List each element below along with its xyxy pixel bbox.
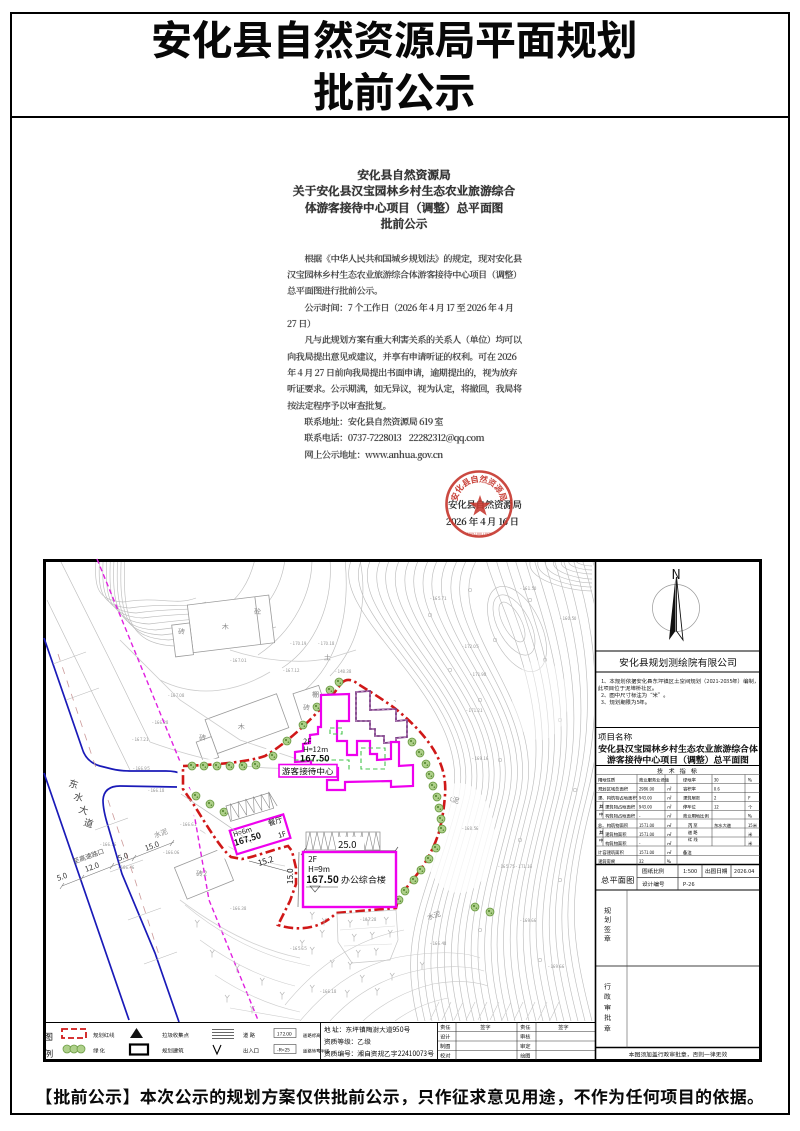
svg-text:规划建筑: 规划建筑 [162,1047,184,1055]
svg-text:砖: 砖 [178,627,185,637]
svg-text:N: N [671,564,680,583]
svg-text:设计编号: 设计编号 [642,880,664,888]
svg-text:地 址：东坪镇陶澍大道950号: 地 址：东坪镇陶澍大道950号 [324,1024,410,1034]
svg-text:建筑物占地面积: 建筑物占地面积 [604,805,636,811]
svg-text:图纸比例: 图纸比例 [642,867,664,875]
svg-text:木: 木 [222,622,229,632]
svg-text:个: 个 [748,804,753,811]
svg-text:容积率: 容积率 [683,787,697,793]
svg-text:章: 章 [604,1024,611,1034]
svg-text:- 168.56: - 168.56 [462,826,479,832]
svg-text:签字: 签字 [558,1024,568,1031]
svg-text:例: 例 [44,1047,53,1060]
svg-text:15.0: 15.0 [285,868,296,884]
svg-text:㎡: ㎡ [667,787,672,793]
svg-text:25.0: 25.0 [338,837,356,851]
svg-text:停车位: 停车位 [682,805,697,811]
svg-text:- 161.50: - 161.50 [520,586,537,592]
svg-text:- 148.38: - 148.38 [335,669,352,675]
svg-text:用地性质: 用地性质 [597,778,616,784]
svg-text:规划区域总面积: 规划区域总面积 [598,787,629,793]
svg-text:㎡: ㎡ [667,850,672,856]
svg-text:943.00: 943.00 [639,796,653,802]
svg-text:出入口: 出入口 [243,1047,259,1055]
svg-text:行: 行 [604,982,611,992]
svg-text:计容建筑面积: 计容建筑面积 [597,850,624,856]
svg-text:制图: 制图 [440,1043,450,1050]
svg-text:砼: 砼 [254,607,261,617]
svg-text:- 167.01: - 167.01 [230,658,247,664]
svg-text:15米: 15米 [748,823,758,829]
svg-text:12: 12 [714,805,719,811]
svg-text:- 170.18: - 170.18 [318,641,335,647]
svg-text:- 165.71: - 165.71 [430,596,447,602]
svg-text:签字: 签字 [480,1024,490,1031]
svg-text:1571.00: 1571.00 [639,832,655,838]
svg-text:㎡: ㎡ [667,796,672,802]
svg-text:1571.00: 1571.00 [639,823,655,829]
svg-text:资质编号：湘自资规乙字22410073号: 资质编号：湘自资规乙字22410073号 [324,1048,434,1058]
svg-text:出图日期: 出图日期 [705,867,728,875]
svg-text:- 166.28: - 166.28 [152,720,169,726]
svg-text:审: 审 [604,1003,611,1013]
svg-text:- 166.18: - 166.18 [320,989,337,995]
svg-text:30: 30 [714,778,719,784]
svg-text:- 167.21: - 167.21 [132,737,149,743]
svg-text:米: 米 [748,832,753,838]
svg-text:%: % [748,814,752,820]
svg-text:- 166.48: - 166.48 [430,941,447,947]
svg-text:建筑密度: 建筑密度 [597,858,616,865]
svg-text:建、构筑物占地面积: 建、构筑物占地面积 [597,796,637,802]
svg-text:章: 章 [604,934,611,944]
svg-text:政: 政 [604,992,611,1002]
svg-text:- 170.19: - 170.19 [290,641,307,647]
svg-text:游客接待中心: 游客接待中心 [282,766,334,778]
svg-text:本图须加盖行政审批章，否则一律无效: 本图须加盖行政审批章，否则一律无效 [628,1050,728,1059]
svg-text:- 160.50: - 160.50 [560,616,577,622]
svg-text:- 167.12: - 167.12 [283,668,300,674]
svg-text:绿 化: 绿 化 [92,1047,106,1055]
svg-text:其: 其 [599,804,604,810]
svg-text:%: % [748,778,752,784]
svg-text:2986.00: 2986.00 [638,787,655,793]
svg-text:- 166.18: - 166.18 [148,788,165,794]
svg-text:米: 米 [748,841,753,847]
svg-text:办公综合楼: 办公综合楼 [341,873,386,886]
svg-text:4309230013976: 4309230013976 [466,532,492,537]
svg-text:- 171.21: - 171.21 [466,708,483,714]
svg-text:图: 图 [44,1030,53,1043]
svg-text:- 167.08: - 167.08 [168,693,185,699]
svg-text:规划红线: 规划红线 [93,1031,115,1039]
svg-text:责任: 责任 [440,1024,451,1031]
svg-text:㎡: ㎡ [667,814,672,820]
svg-text:P-26: P-26 [683,880,694,888]
svg-text:红 线: 红 线 [687,836,698,843]
svg-text:1:500: 1:500 [683,867,697,875]
svg-text:2026.04: 2026.04 [734,867,755,875]
svg-text:审核: 审核 [520,1034,531,1041]
svg-text:3、规划期限为5年。: 3、规划期限为5年。 [601,698,650,706]
svg-text:审定: 审定 [520,1043,531,1050]
svg-text:其: 其 [599,830,604,836]
svg-text:安化县规划测绘院有限公司: 安化县规划测绘院有限公司 [619,655,737,669]
svg-text:木: 木 [238,722,245,732]
svg-text:0.6: 0.6 [714,787,721,793]
svg-text:拉圾收集点: 拉圾收集点 [162,1031,190,1039]
svg-text:㎡: ㎡ [667,841,672,847]
svg-text:- 166.61: - 166.61 [180,822,197,828]
svg-text:建筑物面积: 建筑物面积 [604,832,627,838]
svg-text:绿地率: 绿地率 [682,778,697,784]
svg-text:构筑物占地面积: 构筑物占地面积 [605,814,636,820]
svg-text:中: 中 [599,812,603,818]
svg-text:批: 批 [604,1013,611,1023]
svg-text:943.00: 943.00 [639,805,653,811]
svg-text:校对: 校对 [440,1053,451,1060]
svg-text:砖: 砖 [199,733,206,743]
svg-text:建筑层数: 建筑层数 [682,796,701,802]
svg-text:172.00: 172.00 [277,1031,292,1038]
svg-text:资质等级：乙级: 资质等级：乙级 [324,1036,371,1046]
svg-text:- 169.66: - 169.66 [520,918,537,924]
svg-text:1571.00: 1571.00 [639,850,655,856]
svg-text:东水大道: 东水大道 [714,823,732,829]
svg-text:- 165.75 - 171.16: - 165.75 - 171.16 [498,864,533,870]
svg-text:㎡: ㎡ [667,823,672,829]
svg-text:- 169.66: - 169.66 [548,964,565,970]
svg-text:棚: 棚 [312,690,319,700]
svg-text:- 166.06: - 166.06 [163,850,180,856]
svg-text:设计: 设计 [440,1034,451,1041]
svg-text:商业用地比例: 商业用地比例 [683,814,709,820]
svg-text:总平面图: 总平面图 [601,874,635,886]
svg-text:167.50: 167.50 [300,752,330,765]
svg-text:技 术 指 标: 技 术 指 标 [657,766,699,775]
svg-text:167.50: 167.50 [306,871,340,886]
svg-text:-R=25: -R=25 [277,1047,290,1054]
svg-text:商业服务业设施: 商业服务业设施 [639,778,670,784]
svg-text:责任: 责任 [520,1024,531,1031]
svg-text:砖: 砖 [303,703,310,713]
svg-text:- 172.05: - 172.05 [462,644,479,650]
svg-text:㎡: ㎡ [667,805,672,811]
svg-text:道 路: 道 路 [243,1031,256,1039]
svg-text:绘图: 绘图 [519,1053,530,1060]
svg-text:划: 划 [604,915,611,925]
svg-text:游客接待中心项目（调整）总平面图: 游客接待中心项目（调整）总平面图 [607,753,749,766]
svg-text:中: 中 [599,838,603,844]
svg-text:道路标高: 道路标高 [302,1032,321,1039]
svg-text:㎡: ㎡ [667,832,672,838]
svg-text:32: 32 [639,859,644,865]
svg-text:2: 2 [713,796,716,802]
svg-text:备注: 备注 [682,850,692,856]
svg-text:构筑物面积: 构筑物面积 [605,841,627,847]
svg-text:砖2: 砖2 [196,869,208,879]
svg-text:- 171.98: - 171.98 [470,672,487,678]
svg-text:道 路: 道 路 [687,830,698,836]
svg-text:%: % [667,859,671,865]
svg-text:总、构筑物面积: 总、构筑物面积 [597,823,629,829]
svg-text:- 165.65: - 165.65 [290,946,307,952]
svg-text:丙 至: 丙 至 [688,823,698,829]
svg-text:- 169.16: - 169.16 [472,756,489,762]
svg-text:- 166.38: - 166.38 [230,906,247,912]
svg-text:土: 土 [324,653,331,663]
